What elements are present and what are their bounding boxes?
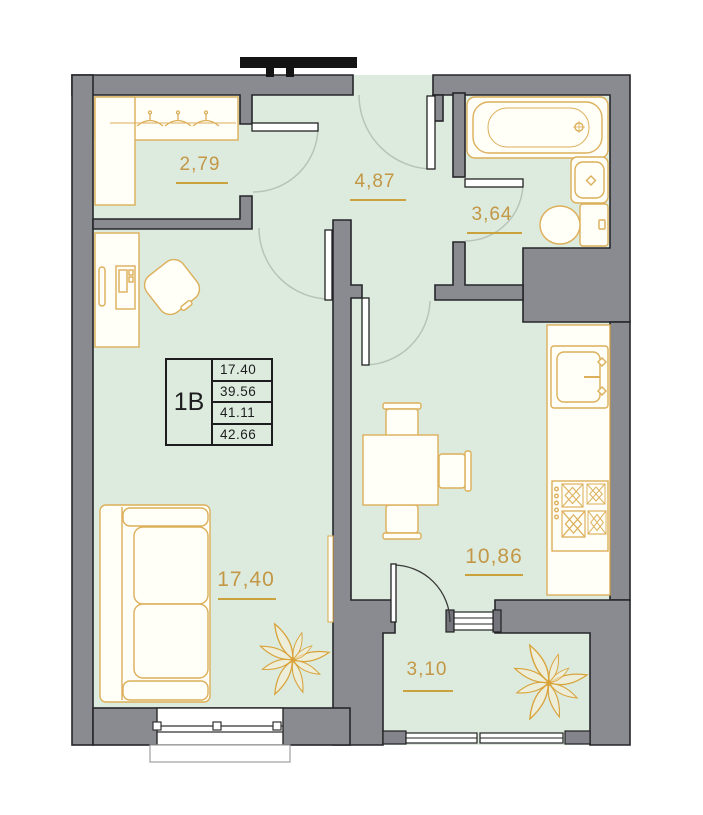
unit-area-row: 17.40 — [213, 360, 271, 380]
room-label-underline — [350, 199, 406, 201]
kitchen-door-leaf — [362, 298, 369, 365]
bathroom-sink-icon — [571, 157, 608, 203]
living-door-leaf — [325, 230, 332, 300]
radiator-icon — [328, 536, 333, 622]
unit-area-row: 39.56 — [213, 380, 271, 402]
room-label-underline — [218, 598, 276, 600]
room-label-underline — [403, 690, 453, 692]
kitchen-sink-icon — [551, 346, 608, 408]
bathroom-door-leaf — [465, 179, 523, 187]
room-label-underline — [465, 574, 523, 576]
unit-area-table: 17.40 39.56 41.11 42.66 — [213, 360, 271, 444]
room-label-kitchen: 10,86 — [442, 546, 546, 567]
kitchen-window — [446, 610, 501, 632]
room-label-balcony: 3,10 — [385, 660, 469, 679]
room-label-bathroom: 3,64 — [450, 205, 534, 224]
room-label-underline — [176, 182, 228, 184]
balcony-door-leaf — [391, 564, 396, 622]
entry-landing-mark — [240, 57, 357, 77]
wall-bathroom-left-upper — [453, 93, 465, 177]
stove-icon — [552, 481, 608, 551]
unit-area-row: 42.66 — [213, 423, 271, 445]
unit-type-label: 1B — [167, 360, 213, 444]
balcony-glazing — [383, 731, 590, 744]
wall-right-kitchen — [610, 322, 630, 600]
room-label-living: 17,40 — [194, 569, 298, 590]
floor-plan: 2,79 4,87 3,64 17,40 10,86 3,10 1B 17.40… — [0, 0, 703, 815]
entry-door-leaf — [427, 96, 435, 169]
unit-info-box: 1B 17.40 39.56 41.11 42.66 — [165, 358, 273, 446]
unit-area-row: 41.11 — [213, 401, 271, 423]
bathtub-icon — [467, 97, 608, 158]
living-room-window — [150, 708, 290, 762]
room-label-hallway: 4,87 — [333, 172, 417, 191]
room-label-wardrobe: 2,79 — [158, 155, 242, 174]
sofa-icon — [100, 505, 210, 702]
desk-icon — [95, 233, 139, 347]
closet-door-leaf — [252, 123, 318, 131]
wall-left — [72, 75, 93, 745]
room-label-underline — [467, 232, 522, 234]
floor-plan-drawing — [0, 0, 703, 815]
